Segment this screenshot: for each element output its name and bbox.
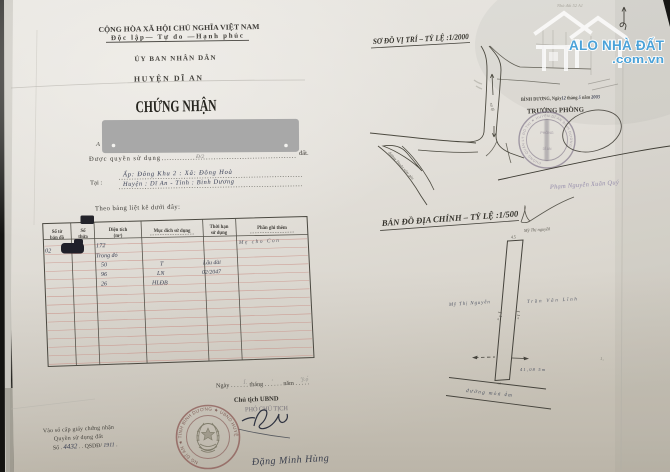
- svg-text:đất.: đất.: [299, 150, 309, 157]
- svg-text:PHÒNG: PHÒNG: [540, 130, 553, 135]
- svg-text:Tại :: Tại :: [90, 180, 102, 187]
- svg-text:Nhà đất 52 A1: Nhà đất 52 A1: [556, 3, 583, 8]
- svg-text:.com.vn: .com.vn: [612, 54, 664, 66]
- svg-text:HLĐB: HLĐB: [151, 281, 168, 287]
- svg-text:HUYỆN DĨ AN: HUYỆN DĨ AN: [134, 73, 203, 83]
- svg-text:96: 96: [101, 272, 107, 278]
- svg-text:CHỨNG NHẬN: CHỨNG NHẬN: [135, 96, 216, 117]
- svg-text:LN: LN: [156, 271, 165, 277]
- svg-text:Đ/2̣: Đ/2̣: [195, 154, 205, 160]
- svg-text:sử dụng: sử dụng: [211, 231, 228, 236]
- svg-text:Lâu dài: Lâu dài: [202, 260, 221, 267]
- svg-text:172: 172: [96, 242, 107, 249]
- svg-text:4.5: 4.5: [511, 236, 516, 240]
- svg-text:Được quyền sử dụng: Được quyền sử dụng: [89, 155, 161, 163]
- svg-text:ỦY BAN NHÂN DÂN: ỦY BAN NHÂN DÂN: [134, 54, 215, 64]
- svg-text:1́.: 1́.: [243, 378, 247, 386]
- svg-text:Mục đích sử dụng: Mục đích sử dụng: [154, 229, 191, 234]
- svg-text:Phần ghi thêm: Phần ghi thêm: [257, 226, 287, 231]
- svg-text:’: ’: [271, 379, 273, 385]
- svg-text:A: A: [95, 141, 100, 148]
- svg-text:50: 50: [101, 263, 107, 269]
- svg-text:Trong đó: Trong đó: [96, 253, 118, 260]
- svg-text:ALO NHÀ ĐẤT: ALO NHÀ ĐẤT: [569, 38, 665, 53]
- svg-text:26: 26: [101, 282, 107, 288]
- svg-text:Số: Số: [80, 229, 86, 234]
- svg-text:Thời hạn: Thời hạn: [210, 225, 229, 230]
- svg-text:DĨ AN: DĨ AN: [543, 146, 552, 151]
- svg-text:02/2047: 02/2047: [202, 268, 222, 276]
- svg-text:Diện tích: Diện tích: [109, 228, 128, 233]
- svg-text:Số tờ: Số tờ: [52, 230, 63, 235]
- svg-text:1,: 1,: [600, 357, 604, 362]
- svg-text:bản đồ: bản đồ: [50, 236, 65, 241]
- svg-text:02: 02: [45, 248, 51, 255]
- svg-text:4.5: 4.5: [497, 382, 502, 386]
- svg-text:(m²): (m²): [114, 233, 123, 239]
